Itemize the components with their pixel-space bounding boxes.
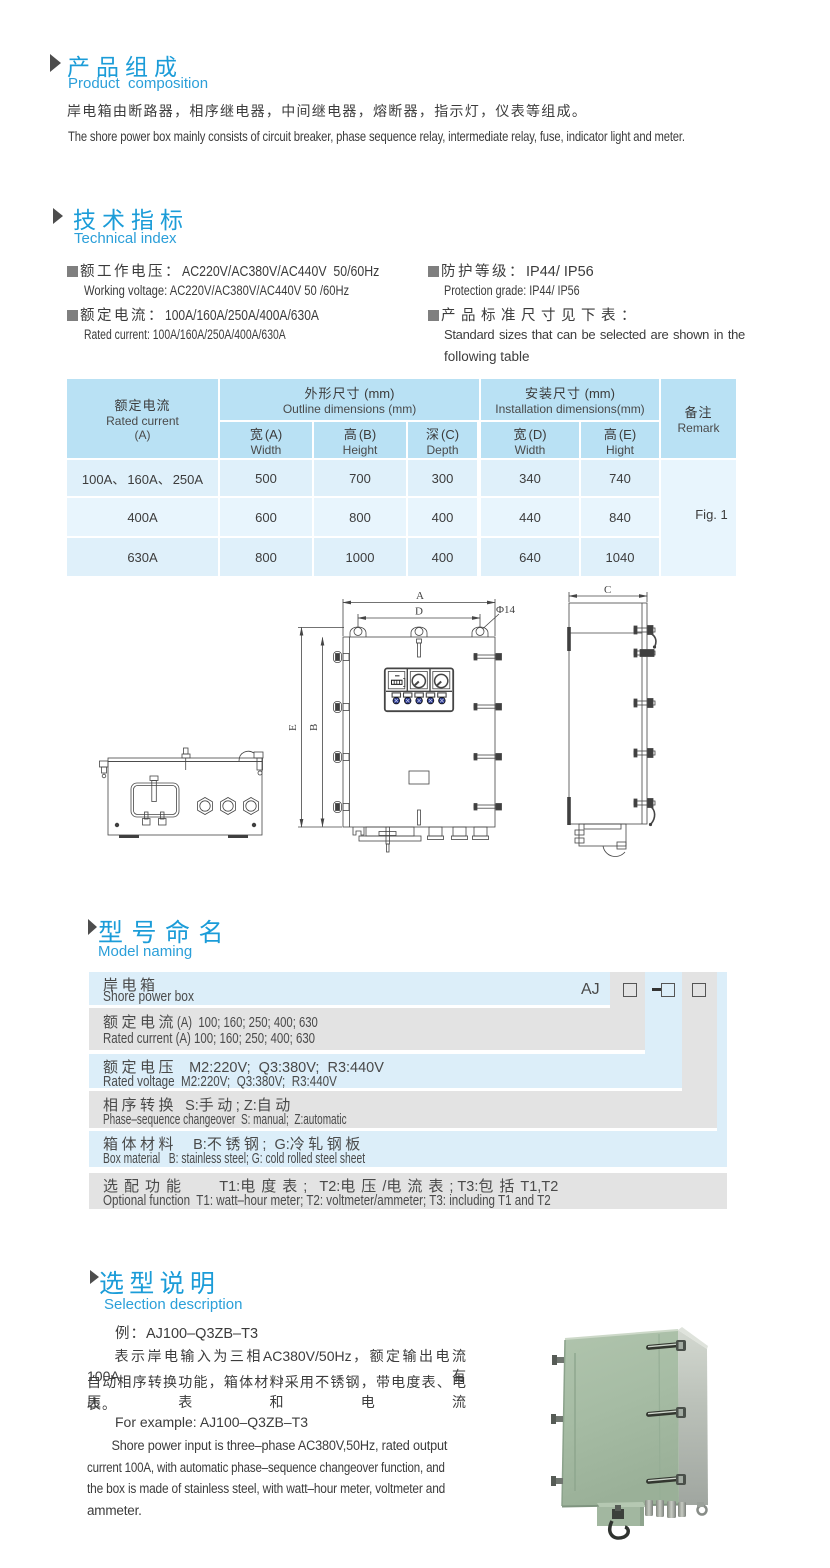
svg-text:C: C — [604, 584, 611, 596]
svg-text:Φ14: Φ14 — [496, 604, 516, 616]
svg-text:D: D — [415, 606, 423, 618]
svg-text:B: B — [308, 724, 320, 731]
svg-text:A: A — [416, 590, 424, 602]
svg-text:E: E — [287, 724, 299, 731]
